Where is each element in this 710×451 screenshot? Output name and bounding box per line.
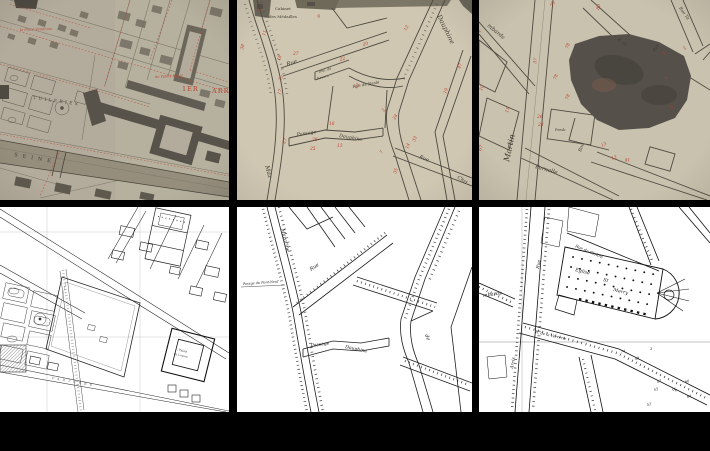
map-tile-top-left[interactable]: SEINE TUILERIES la Place Vendôme du Pala…: [0, 0, 229, 200]
map-tile-bottom-right[interactable]: Eglise St Merry Rue du Cloître R. de la …: [479, 207, 710, 412]
map-tile-bottom-left[interactable]: PARTERRE Palais du Louvre: [0, 207, 229, 412]
map-tile-bottom-middle[interactable]: Mazarine Rue de Passage Dauphine Passge …: [237, 207, 472, 412]
vignette: [0, 0, 229, 200]
map-grid: SEINE TUILERIES la Place Vendôme du Pala…: [0, 0, 710, 451]
top-left-map-svg: SEINE TUILERIES la Place Vendôme du Pala…: [0, 0, 229, 200]
bottom-right-map-svg: Eglise St Merry Rue du Cloître R. de la …: [479, 207, 710, 412]
paper-background: [479, 207, 710, 412]
paper-background: [0, 207, 229, 412]
hatched-block: [0, 345, 26, 372]
vignette: [479, 0, 710, 200]
bottom-left-map-svg: PARTERRE Palais du Louvre: [0, 207, 229, 412]
paper-background: [237, 207, 472, 412]
top-middle-map-svg: Cabinet des Médailles Rue Imp. de Nevers…: [237, 0, 472, 200]
vignette: [237, 0, 472, 200]
bottom-middle-map-svg: Mazarine Rue de Passage Dauphine Passge …: [237, 207, 472, 412]
top-right-map-svg: Martin mbards Pernelle Presb R. du Rue R…: [479, 0, 710, 200]
map-tile-top-right[interactable]: Martin mbards Pernelle Presb R. du Rue R…: [479, 0, 710, 200]
map-tile-top-middle[interactable]: Cabinet des Médailles Rue Imp. de Nevers…: [237, 0, 472, 200]
